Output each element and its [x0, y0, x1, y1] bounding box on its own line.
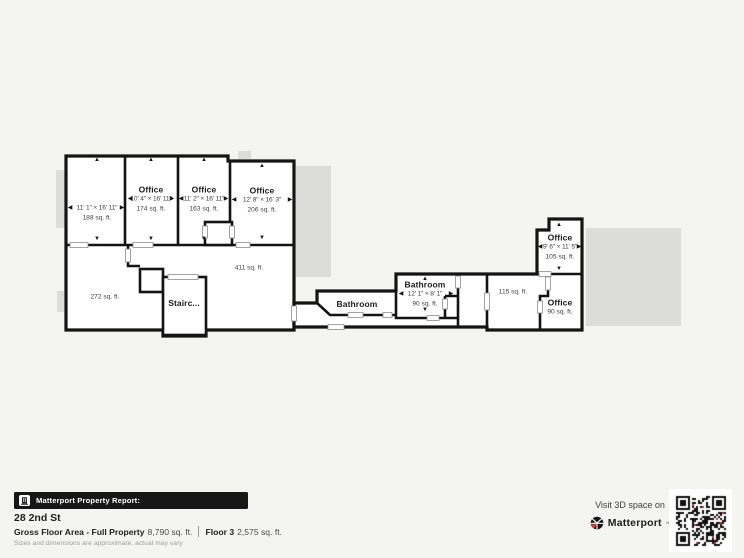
dimension-arrow-icon: ▶ — [170, 196, 175, 202]
dimension-arrow-icon: ◀ — [179, 196, 184, 202]
room-label-office: Office 11' 2" × 16' 11" 163 sq. ft. — [184, 185, 225, 214]
room-label-office: Office 9' 6" × 11' 5" 105 sq. ft. — [543, 233, 577, 262]
room-dimensions: 12' 8" × 16' 3" — [243, 196, 281, 206]
dimension-arrow-icon: ▶ — [224, 196, 229, 202]
matterport-wordmark: Matterport — [608, 517, 662, 529]
room-area: 188 sq. ft. — [77, 213, 118, 223]
dimension-arrow-icon: ▶ — [577, 244, 582, 250]
building-icon — [19, 495, 30, 506]
dimension-arrow-icon: ◀ — [538, 244, 543, 250]
room-label-bathroom: Bathroom — [337, 299, 378, 309]
dimension-arrow-icon: ▼ — [201, 236, 207, 242]
room-label-office: Office 90 sq. ft. — [547, 297, 572, 317]
dimension-arrow-icon: ▼ — [148, 236, 154, 242]
floor-area-stats: Gross Floor Area - Full Property 8,790 s… — [14, 526, 282, 537]
floor-area-value: 2,575 sq. ft. — [237, 527, 282, 537]
room-area: 105 sq. ft. — [543, 252, 577, 262]
qr-code — [674, 494, 728, 548]
dimension-arrow-icon: ▲ — [259, 163, 265, 169]
property-address: 28 2nd St — [14, 512, 61, 524]
room-dimensions: 12' 1" × 8' 1" — [405, 290, 446, 300]
room-area: 174 sq. ft. — [130, 204, 171, 214]
room-area: 272 sq. ft. — [91, 292, 120, 302]
room-name: Office — [130, 185, 171, 195]
dimension-arrow-icon: ▲ — [94, 157, 100, 163]
dimension-arrow-icon: ◀ — [399, 291, 404, 297]
room-label: 411 sq. ft. — [235, 263, 263, 273]
dimension-arrow-icon: ▼ — [259, 235, 265, 241]
dimension-arrow-icon: ◀ — [68, 205, 73, 211]
gross-floor-area-label: Gross Floor Area - Full Property — [14, 527, 145, 537]
room-dimensions: 10' 4" × 16' 11" — [130, 195, 171, 205]
dimension-arrow-icon: ◀ — [128, 196, 133, 202]
room-label-office: Office 12' 8" × 16' 3" 206 sq. ft. — [243, 186, 281, 215]
room-label: 272 sq. ft. — [91, 292, 120, 302]
room-label: 11' 1" × 16' 11" 188 sq. ft. — [77, 204, 118, 223]
room-dimensions: 11' 1" × 16' 11" — [77, 204, 118, 214]
dimension-arrow-icon: ▼ — [94, 236, 100, 242]
room-area: 206 sq. ft. — [243, 205, 281, 215]
room-label-office: Office 10' 4" × 16' 11" 174 sq. ft. — [130, 185, 171, 214]
dimension-arrow-icon: ▲ — [556, 222, 562, 228]
dimension-arrow-icon: ▶ — [288, 197, 293, 203]
dimension-arrow-icon: ▶ — [120, 205, 125, 211]
qr-code-card — [669, 489, 732, 552]
gross-floor-area-value: 8,790 sq. ft. — [148, 527, 193, 537]
floor-label: Floor 3 — [205, 527, 234, 537]
report-title-bar: Matterport Property Report: — [14, 492, 248, 509]
dimension-arrow-icon: ▲ — [422, 276, 428, 282]
room-dimensions: 11' 2" × 16' 11" — [184, 195, 225, 205]
floor-plan — [0, 0, 744, 558]
matterport-logo-icon — [590, 516, 604, 530]
room-name: Stairc... — [168, 298, 200, 308]
room-area: 163 sq. ft. — [184, 204, 225, 214]
dimension-arrow-icon: ▶ — [449, 291, 454, 297]
room-name: Office — [543, 233, 577, 243]
room-dimensions: 9' 6" × 11' 5" — [543, 243, 577, 253]
room-label-bathroom: Bathroom 12' 1" × 8' 1" 90 sq. ft. — [405, 280, 446, 309]
stats-divider — [198, 526, 199, 537]
room-label: 115 sq. ft. — [499, 287, 527, 297]
dimension-arrow-icon: ◀ — [232, 197, 237, 203]
room-area: 115 sq. ft. — [499, 287, 527, 297]
room-label-staircase: Stairc... — [168, 298, 200, 308]
room-area: 411 sq. ft. — [235, 263, 263, 273]
dimension-arrow-icon: ▼ — [422, 307, 428, 313]
room-name: Bathroom — [337, 299, 378, 309]
room-name: Office — [184, 185, 225, 195]
room-name: Office — [243, 186, 281, 196]
dimension-arrow-icon: ▲ — [201, 157, 207, 163]
room-name: Office — [547, 297, 572, 307]
dimension-arrow-icon: ▼ — [556, 266, 562, 272]
dimension-arrow-icon: ▲ — [148, 157, 154, 163]
room-area: 90 sq. ft. — [547, 307, 572, 317]
report-bar-label: Matterport Property Report: — [36, 496, 140, 505]
disclaimer-text: Sizes and dimensions are approximate, ac… — [14, 540, 183, 547]
